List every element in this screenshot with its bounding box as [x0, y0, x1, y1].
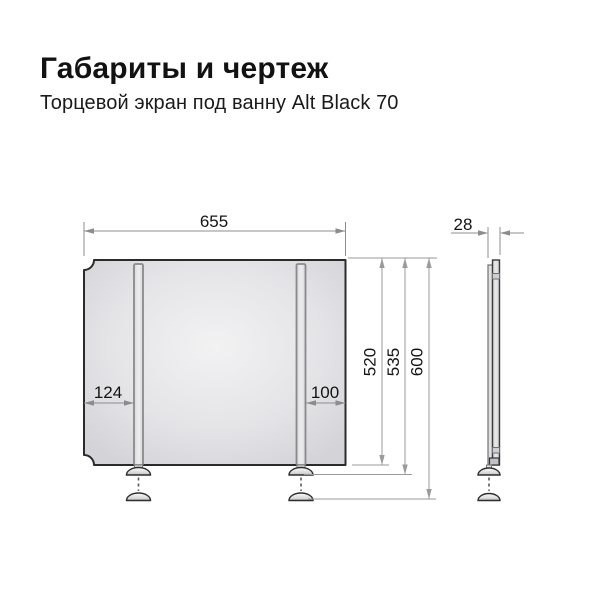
dim-height-600-arrow-top: [426, 258, 431, 268]
dim-height-520-arrow-top: [379, 258, 384, 268]
front-view: 655 124 100: [84, 212, 437, 501]
side-bracket-bottom: [493, 448, 500, 454]
dim-width-arrow-right: [336, 228, 346, 233]
dim-height-520-label: 520: [361, 348, 380, 376]
side-leg-base-block: [490, 458, 500, 465]
foot-left-dome-lower: [127, 493, 151, 501]
dim-height-600-label: 600: [408, 348, 427, 376]
side-foot: [478, 465, 500, 501]
foot-right-dome-upper: [289, 468, 313, 476]
foot-right: [289, 465, 313, 501]
dim-thickness-arrow-left: [478, 230, 488, 235]
side-view: 28: [451, 215, 524, 501]
leg-left: [134, 264, 143, 465]
dim-offset-right-label: 100: [311, 383, 339, 402]
dim-height-535-arrow-top: [402, 258, 407, 268]
dim-offset-left-label: 124: [94, 383, 122, 402]
side-foot-dome-lower: [478, 494, 500, 501]
foot-left-dome-upper: [127, 468, 151, 476]
side-bracket-top: [493, 274, 500, 280]
dim-thickness-arrow-right: [500, 230, 510, 235]
side-panel-board: [493, 260, 500, 465]
dim-width-arrow-left: [84, 228, 94, 233]
dim-width-label: 655: [200, 212, 228, 231]
dim-height-535-label: 535: [384, 348, 403, 376]
dim-thickness-label: 28: [454, 215, 473, 234]
dim-height-535-arrow-bottom: [402, 465, 407, 475]
foot-left: [127, 465, 151, 501]
dim-height-600-arrow-bottom: [426, 489, 431, 499]
dim-height-520-arrow-bottom: [379, 455, 384, 465]
technical-drawing: 655 124 100: [0, 0, 600, 600]
side-foot-dome-upper: [478, 468, 500, 475]
page: Габариты и чертеж Торцевой экран под ван…: [0, 0, 600, 600]
leg-right: [297, 264, 306, 465]
